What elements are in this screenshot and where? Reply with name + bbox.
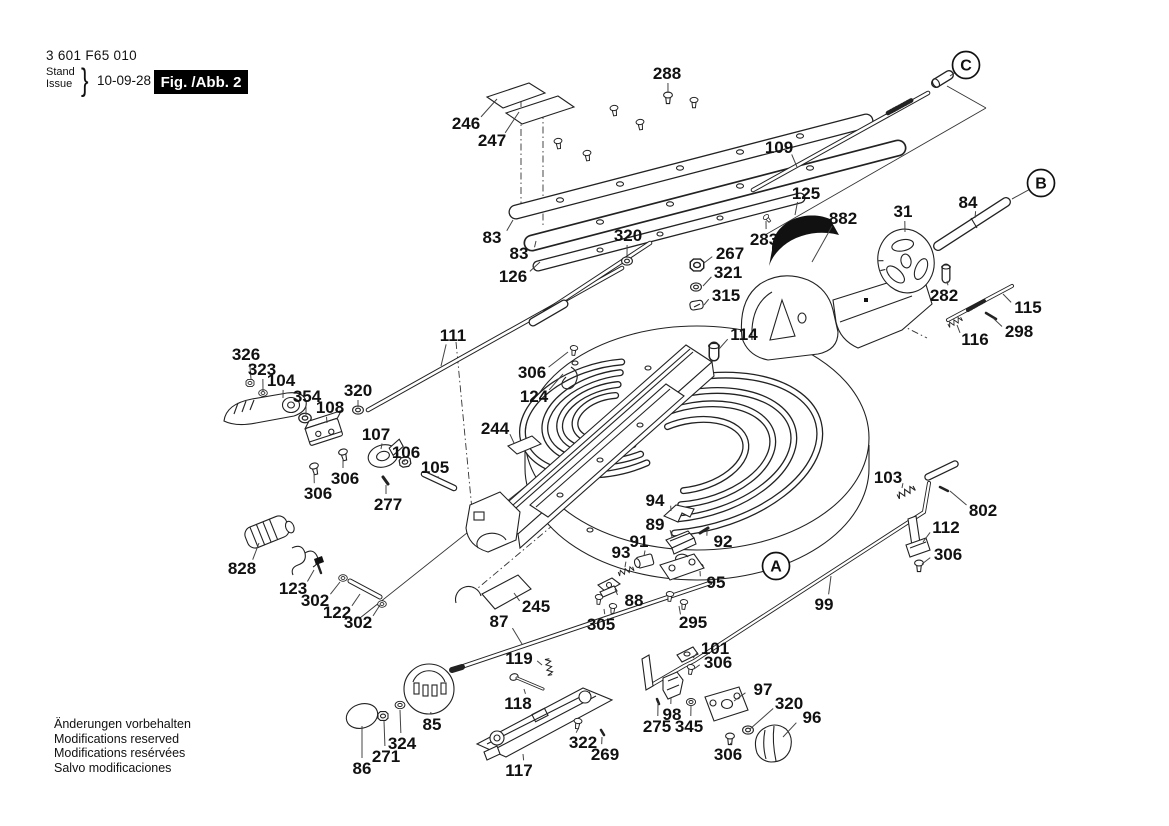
- part-number-label: 109: [765, 138, 793, 157]
- part-number-label: 108: [316, 398, 344, 417]
- part-number-label: 345: [675, 717, 703, 736]
- knob-96-drawing: [755, 725, 791, 762]
- leader-line: [537, 661, 542, 665]
- leader-line: [950, 491, 967, 505]
- part-number-label: 315: [712, 286, 740, 305]
- part-number-label: 282: [930, 286, 958, 305]
- part-number-label: 97: [754, 680, 773, 699]
- part-number-label: 91: [630, 532, 649, 551]
- part-number-label: 126: [499, 267, 527, 286]
- knob-828-drawing: [242, 512, 296, 551]
- diagram-page: 3 601 F65 010 Stand Issue } 10-09-28 Fig…: [0, 0, 1169, 826]
- part-number-label: 85: [423, 715, 442, 734]
- part-number-label: 103: [874, 468, 902, 487]
- view-letter-label: B: [1035, 176, 1047, 193]
- part-number-label: 119: [505, 649, 532, 668]
- pin-277-drawing: [383, 477, 388, 484]
- view-letter-label: A: [770, 559, 782, 576]
- exploded-parts-diagram: 2882462471091258823184283838332012626732…: [0, 0, 1169, 826]
- part-number-label: 95: [707, 573, 726, 592]
- part-number-label: 92: [714, 532, 733, 551]
- part-number-label: 105: [421, 458, 449, 477]
- part-number-label: 306: [331, 469, 359, 488]
- nut-271-icon: [378, 712, 388, 721]
- leader-line: [957, 325, 960, 333]
- part-number-label: 295: [679, 613, 707, 632]
- part-number-label: 107: [362, 425, 390, 444]
- part-number-label: 31: [894, 202, 913, 221]
- part-number-label: 275: [643, 717, 671, 736]
- rod-end-drawing: [928, 464, 955, 477]
- part-number-label: 321: [714, 263, 742, 282]
- leader-line: [829, 576, 831, 594]
- part-number-label: 93: [612, 543, 631, 562]
- part-number-label: 117: [505, 761, 532, 780]
- part-number-label: 104: [267, 371, 296, 390]
- part-number-label: 112: [932, 518, 959, 537]
- pin-802-drawing: [940, 487, 948, 491]
- bushing-114-drawing: [709, 343, 720, 356]
- part-number-label: 267: [716, 244, 744, 263]
- leader-line: [326, 417, 327, 423]
- part-number-label: 99: [815, 595, 834, 614]
- part-number-label: 111: [440, 326, 467, 345]
- part-number-label: 283: [750, 230, 778, 249]
- leader-line: [549, 352, 568, 367]
- leader-line: [507, 220, 513, 231]
- leader-line: [604, 609, 605, 614]
- part-number-label: 87: [490, 612, 509, 631]
- leader-line: [1012, 190, 1029, 199]
- part-number-label: 320: [344, 381, 372, 400]
- leader-line: [1003, 294, 1011, 302]
- part-number-label: 306: [518, 363, 546, 382]
- part-number-label: 828: [228, 559, 256, 578]
- part-number-label: 298: [1005, 322, 1033, 341]
- bracket-97-drawing: [705, 687, 748, 721]
- part-number-label: 306: [304, 484, 332, 503]
- leader-line: [330, 582, 340, 594]
- part-number-label: 246: [452, 114, 480, 133]
- part-number-label: 288: [653, 64, 681, 83]
- pin-122-drawing: [350, 581, 380, 597]
- part-number-label: 306: [934, 545, 962, 564]
- leader-line: [481, 99, 497, 117]
- part-number-label: 271: [372, 747, 400, 766]
- bolt-118-drawing: [509, 673, 543, 689]
- part-number-label: 116: [961, 330, 988, 349]
- bevel-tower-drawing: [741, 276, 838, 360]
- leader-line: [704, 299, 709, 305]
- spring-119-icon: [545, 659, 553, 676]
- part-number-label: 882: [829, 209, 857, 228]
- leader-line: [441, 344, 446, 366]
- leader-line: [703, 277, 711, 286]
- part-number-label: 306: [704, 653, 732, 672]
- washer-302a-icon: [339, 575, 348, 582]
- nut-267-icon: [690, 259, 704, 271]
- part-number-label: 245: [522, 597, 550, 616]
- washer-324-icon: [395, 701, 405, 708]
- bushing-c-drawing: [931, 75, 949, 88]
- leader-line: [307, 570, 314, 581]
- part-number-label: 247: [478, 131, 506, 150]
- part-number-label: 802: [969, 501, 997, 520]
- part-number-label: 306: [714, 745, 742, 764]
- leader-line: [523, 754, 524, 760]
- part-number-label: 83: [483, 228, 502, 247]
- nut-326-icon: [246, 379, 254, 386]
- leader-line: [922, 558, 930, 564]
- part-number-label: 83: [510, 244, 529, 263]
- leader-line: [993, 318, 1002, 327]
- part-number-label: 305: [587, 615, 615, 634]
- part-number-label: 94: [646, 491, 665, 510]
- leader-line: [704, 257, 712, 263]
- part-number-label: 115: [1014, 298, 1041, 317]
- leader-line: [430, 712, 431, 714]
- part-number-label: 320: [775, 694, 803, 713]
- pin-269-drawing: [601, 730, 604, 735]
- bushing-282-drawing: [942, 265, 951, 279]
- spring-103-icon: [897, 485, 916, 499]
- part-number-label: 118: [504, 694, 531, 713]
- part-number-label: 84: [959, 193, 978, 212]
- part-number-label: 124: [520, 387, 549, 406]
- part-number-label: 320: [614, 226, 642, 245]
- part-number-label: 88: [625, 591, 644, 610]
- grip-knob-85-drawing: [404, 664, 454, 714]
- part-number-label: 244: [481, 419, 510, 438]
- leader-line: [400, 710, 401, 733]
- leader-line: [975, 211, 976, 218]
- washer-321-icon: [691, 283, 702, 291]
- clamp-112-drawing: [906, 516, 930, 557]
- part-number-label: 277: [374, 495, 402, 514]
- part-number-label: 269: [591, 745, 619, 764]
- leader-line: [384, 721, 385, 746]
- pin-298-drawing: [986, 313, 996, 319]
- wedge-245-drawing: [456, 575, 531, 609]
- part-number-label: 86: [353, 759, 372, 778]
- part-number-label: 96: [803, 708, 822, 727]
- leader-line: [352, 594, 360, 606]
- leader-line: [512, 628, 522, 644]
- leader-line: [510, 434, 514, 443]
- washer-320-icon: [622, 257, 633, 265]
- part-number-label: 125: [792, 184, 820, 203]
- washer-345-icon: [686, 699, 695, 706]
- view-letter-label: C: [960, 58, 972, 75]
- part-number-label: 302: [344, 613, 372, 632]
- washer-320b-icon: [353, 406, 364, 414]
- part-number-label: 106: [392, 443, 420, 462]
- part-number-label: 114: [730, 325, 758, 344]
- clip-315-drawing: [689, 300, 703, 311]
